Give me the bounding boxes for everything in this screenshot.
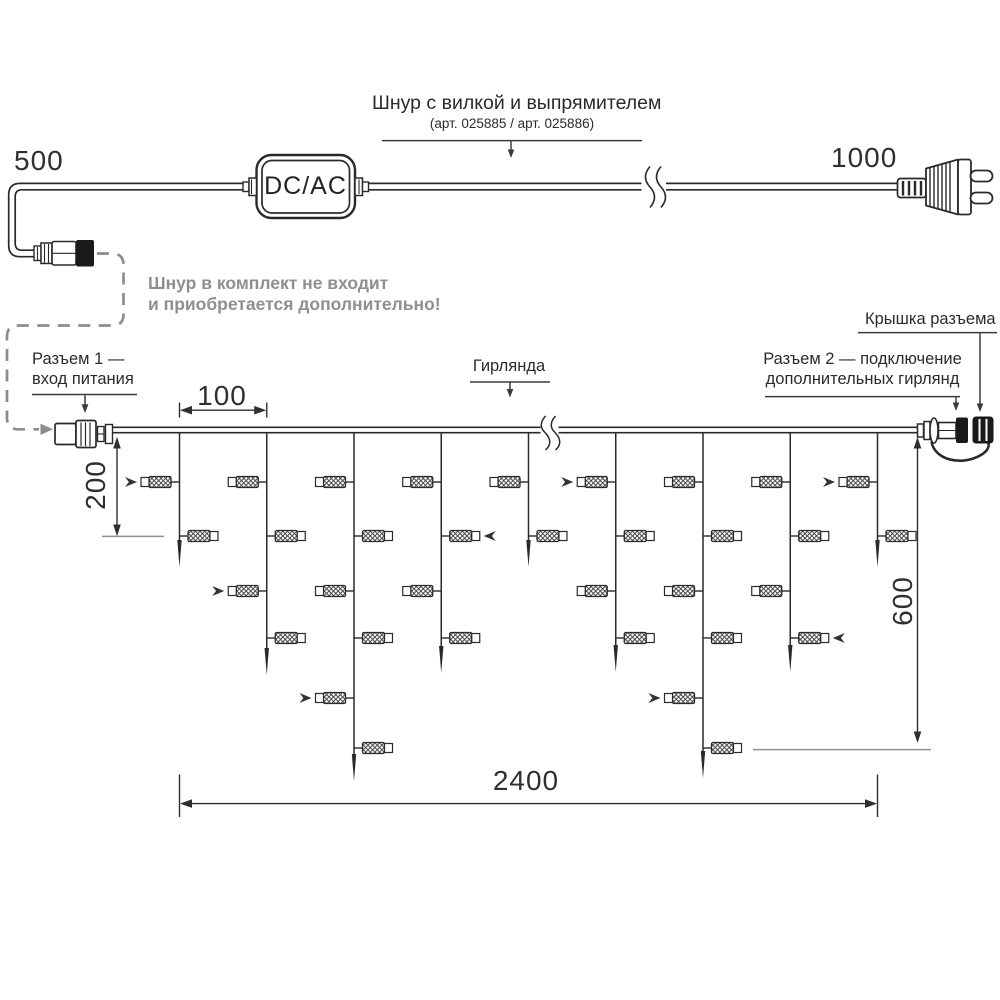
bulb-cap — [752, 478, 760, 487]
bulb-body — [712, 633, 734, 644]
bulb-body — [450, 531, 472, 542]
bulb-body — [585, 477, 607, 488]
cord-title-line2: (арт. 025885 / арт. 025886) — [372, 116, 652, 132]
bulb — [354, 531, 393, 542]
bulb-body — [411, 586, 433, 597]
bulb-body — [411, 477, 433, 488]
bulb — [665, 586, 704, 597]
bulb — [752, 477, 791, 488]
garland-drop-2 — [212, 434, 305, 676]
power-cord-dashed-path — [7, 254, 124, 436]
connector1-label-line2: вход питания — [32, 370, 134, 390]
bulb-direction-arrow — [125, 477, 137, 487]
title-leader — [382, 141, 642, 158]
bulb — [616, 633, 655, 644]
connector1-label: Разъем 1 — вход питания — [32, 350, 134, 389]
bulb — [823, 477, 878, 488]
bulb — [790, 531, 829, 542]
bulb-body — [236, 477, 258, 488]
bulb-cap — [403, 478, 411, 487]
garland-drop-6 — [561, 434, 654, 673]
bulb-cap — [821, 532, 829, 541]
garland-drop-5 — [490, 434, 567, 568]
bulb-direction-arrow — [561, 477, 573, 487]
bulb — [403, 477, 442, 488]
bulb-body — [847, 477, 869, 488]
bulb-body — [799, 633, 821, 644]
bulb-direction-arrow — [212, 586, 224, 596]
bulb-body — [712, 531, 734, 542]
bulb-body — [712, 743, 734, 754]
bulb — [703, 531, 742, 542]
bulb-body — [275, 633, 297, 644]
drop-tip — [177, 540, 181, 567]
bulb-body — [324, 586, 346, 597]
bulb-body — [760, 586, 782, 597]
bulb — [649, 693, 704, 704]
bulb-cap — [821, 634, 829, 643]
garland-drop-7 — [649, 434, 742, 779]
bulb-direction-arrow — [649, 693, 661, 703]
bulb-body — [673, 586, 695, 597]
drop-tip — [875, 540, 879, 567]
cord-title: Шнур с вилкой и выпрямителем (арт. 02588… — [372, 92, 652, 132]
bulb — [790, 633, 845, 644]
bulb-cap — [734, 532, 742, 541]
wire-break-symbol — [541, 416, 560, 450]
bulb — [267, 633, 306, 644]
bulb-body — [363, 743, 385, 754]
drop-tip — [526, 540, 530, 567]
cord-note-line1: Шнур в комплект не входит — [148, 273, 441, 294]
bulb-cap — [297, 532, 305, 541]
bulb — [212, 586, 267, 597]
bulb-body — [624, 633, 646, 644]
garland-drop-8 — [752, 434, 845, 673]
bulb-body — [537, 531, 559, 542]
connector-1 — [55, 421, 113, 448]
garland-drop-1 — [125, 434, 218, 568]
dc-ac-label: DC/AC — [256, 172, 355, 201]
connector1-label-line1: Разъем 1 — — [32, 350, 134, 370]
cord-note: Шнур в комплект не входит и приобретаетс… — [148, 273, 441, 315]
bulb — [561, 477, 616, 488]
bulb-body — [799, 531, 821, 542]
bulb-cap — [472, 634, 480, 643]
bulb-cap — [490, 478, 498, 487]
bulb-cap — [752, 587, 760, 596]
bulb-cap — [385, 634, 393, 643]
bulb-cap — [472, 532, 480, 541]
drop-tip — [352, 754, 356, 781]
bulb-body — [363, 531, 385, 542]
bulb-direction-arrow — [300, 693, 312, 703]
dim-label-1000: 1000 — [831, 142, 897, 174]
cap-label: Крышка разъема — [865, 310, 996, 329]
bulb-cap — [559, 532, 567, 541]
drop-tip — [614, 645, 618, 672]
bulb-cap — [646, 634, 654, 643]
drop-tip — [439, 646, 443, 673]
drop-tip — [265, 648, 269, 675]
cord-break-symbol — [646, 167, 666, 208]
bulb-cap — [210, 532, 218, 541]
bulb — [316, 477, 355, 488]
bulb-body — [624, 531, 646, 542]
bulb — [228, 477, 267, 488]
bulb-cap — [316, 587, 324, 596]
connector2-label: Разъем 2 — подключение дополнительных ги… — [742, 350, 983, 389]
connector1-arrow — [82, 395, 89, 413]
bulb — [441, 531, 496, 542]
bulb-direction-arrow — [484, 531, 496, 541]
bulb-body — [498, 477, 520, 488]
bulb-cap — [316, 694, 324, 703]
garland-drops — [125, 434, 916, 782]
connector2-leader — [765, 397, 960, 411]
bulb — [665, 477, 704, 488]
bulb-cap — [228, 587, 236, 596]
bulb — [180, 531, 219, 542]
bulb — [878, 531, 917, 542]
bulb-cap — [908, 532, 916, 541]
garland-leader — [470, 382, 550, 398]
bulb-cap — [734, 744, 742, 753]
bulb-direction-arrow — [833, 633, 845, 643]
cord-title-line1: Шнур с вилкой и выпрямителем — [372, 92, 652, 114]
mains-plug — [898, 160, 993, 215]
bulb-cap — [839, 478, 847, 487]
bulb — [354, 633, 393, 644]
garland-drop-4 — [403, 434, 496, 674]
dim-label-500: 500 — [14, 145, 64, 177]
bulb — [703, 743, 742, 754]
bulb-cap — [665, 478, 673, 487]
garland-label: Гирлянда — [448, 357, 570, 376]
drop-tip — [788, 645, 792, 672]
bulb-body — [760, 477, 782, 488]
bulb — [752, 586, 791, 597]
bulb-body — [275, 531, 297, 542]
bulb-body — [585, 586, 607, 597]
dim-label-100: 100 — [191, 380, 253, 412]
bulb-cap — [228, 478, 236, 487]
bulb-body — [188, 531, 210, 542]
bulb — [490, 477, 529, 488]
bulb-cap — [385, 532, 393, 541]
connector2-label-line2: дополнительных гирлянд — [742, 370, 983, 390]
bulb-body — [673, 477, 695, 488]
bulb-body — [324, 693, 346, 704]
bulb — [300, 693, 355, 704]
dim-label-2400: 2400 — [483, 765, 569, 797]
bulb-cap — [141, 478, 149, 487]
bulb-cap — [403, 587, 411, 596]
bulb-body — [236, 586, 258, 597]
bulb-body — [450, 633, 472, 644]
cap-tether — [932, 442, 989, 461]
bulb-cap — [734, 634, 742, 643]
bulb — [125, 477, 180, 488]
bulb-body — [363, 633, 385, 644]
connector2-label-line1: Разъем 2 — подключение — [742, 350, 983, 370]
bulb — [529, 531, 568, 542]
bulb-body — [324, 477, 346, 488]
dim-label-200: 200 — [80, 445, 110, 525]
bulb-cap — [297, 634, 305, 643]
dim-label-600: 600 — [887, 559, 917, 643]
connector-2 — [918, 417, 994, 461]
bulb-cap — [385, 744, 393, 753]
connector-cap — [973, 417, 994, 444]
garland-drop-3 — [300, 434, 393, 782]
dc-plug-connector — [34, 240, 94, 267]
bulb — [703, 633, 742, 644]
diagram-stage: 500 1000 Шнур с вилкой и выпрямителем (а… — [0, 0, 1000, 1000]
bulb-cap — [646, 532, 654, 541]
bulb — [577, 586, 616, 597]
bulb — [267, 531, 306, 542]
bulb-body — [149, 477, 171, 488]
garland-wire — [112, 416, 918, 450]
bulb-direction-arrow — [823, 477, 835, 487]
bulb-cap — [665, 587, 673, 596]
garland-drop-9 — [823, 434, 916, 568]
drop-tip — [701, 751, 705, 778]
bulb — [403, 586, 442, 597]
bulb — [441, 633, 480, 644]
bulb-body — [673, 693, 695, 704]
bulb — [316, 586, 355, 597]
bulb-cap — [577, 478, 585, 487]
bulb — [354, 743, 393, 754]
bulb-cap — [316, 478, 324, 487]
bulb — [616, 531, 655, 542]
bulb-cap — [665, 694, 673, 703]
bulb-cap — [577, 587, 585, 596]
dashed-arrow-head — [41, 424, 54, 435]
bulb-body — [886, 531, 908, 542]
cord-note-line2: и приобретается дополнительно! — [148, 294, 441, 315]
